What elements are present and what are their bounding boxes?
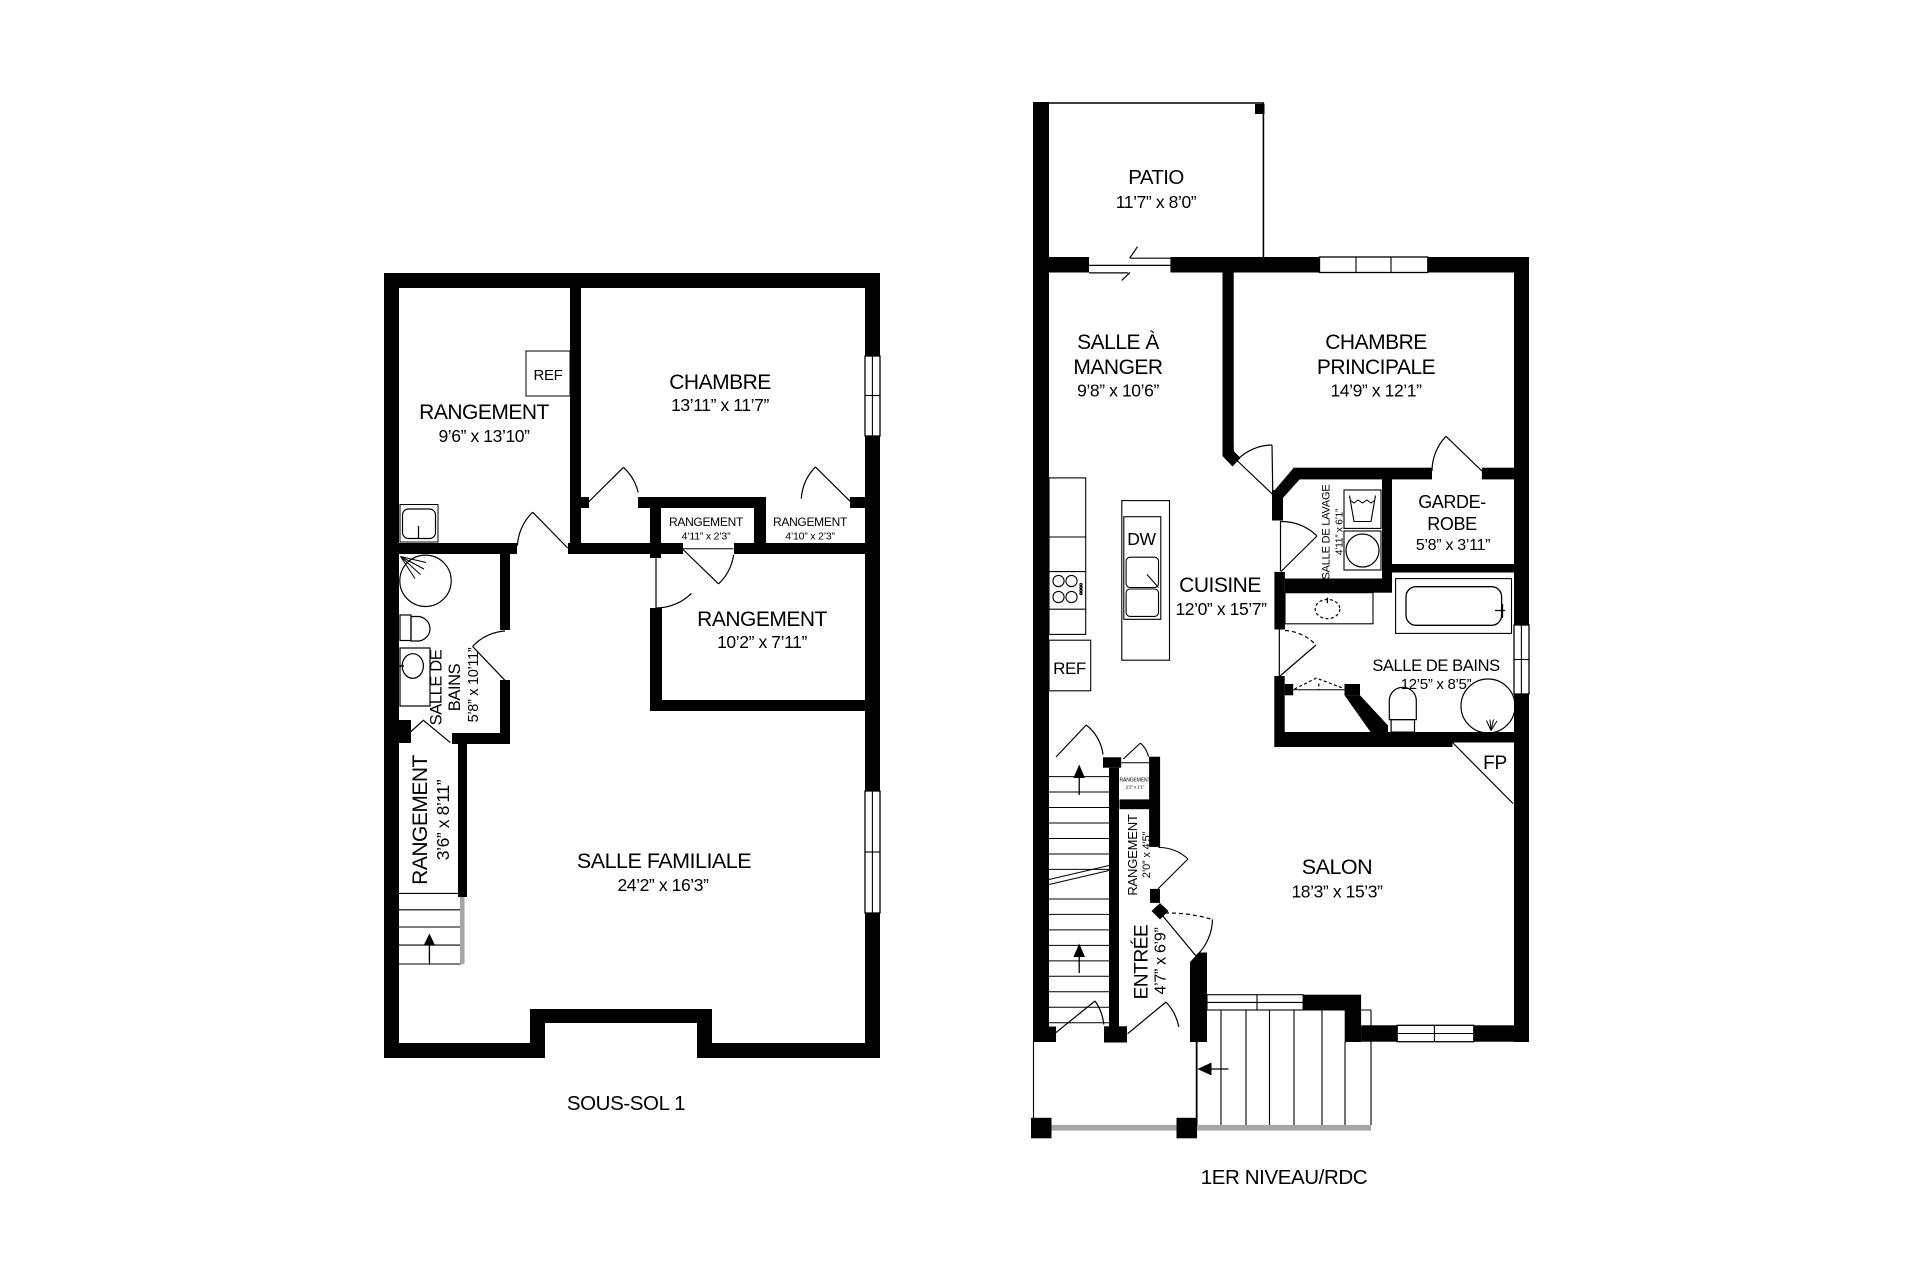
svg-text:SALLE DE BAINS: SALLE DE BAINS: [1372, 657, 1500, 675]
svg-text:REF: REF: [533, 367, 562, 384]
svg-text:5’8” x 10’11”: 5’8” x 10’11”: [466, 647, 482, 722]
svg-text:RANGEMENT: RANGEMENT: [773, 515, 848, 529]
svg-text:RANGEMENT: RANGEMENT: [409, 754, 432, 884]
svg-text:PRINCIPALE: PRINCIPALE: [1317, 356, 1436, 379]
svg-text:18’3” x 15’3”: 18’3” x 15’3”: [1291, 882, 1383, 902]
svg-text:CHAMBRE: CHAMBRE: [669, 371, 771, 394]
svg-text:9’6” x 13’10”: 9’6” x 13’10”: [438, 426, 530, 446]
svg-text:4’10” x 2’3”: 4’10” x 2’3”: [785, 531, 835, 543]
svg-text:14’9” x 12’1”: 14’9” x 12’1”: [1330, 381, 1422, 401]
svg-text:SALLE FAMILIALE: SALLE FAMILIALE: [577, 849, 751, 873]
svg-text:9’8” x 10’6”: 9’8” x 10’6”: [1077, 381, 1159, 401]
svg-text:REF: REF: [1053, 659, 1086, 678]
svg-text:SALON: SALON: [1302, 855, 1372, 879]
svg-text:CHAMBRE: CHAMBRE: [1325, 331, 1427, 354]
svg-text:5’8” x 3’11”: 5’8” x 3’11”: [1416, 537, 1490, 554]
svg-text:13’11” x 11’7”: 13’11” x 11’7”: [671, 395, 769, 415]
svg-text:SALLE DE: SALLE DE: [428, 649, 446, 725]
svg-text:SALLE DE LAVAGE: SALLE DE LAVAGE: [1321, 484, 1333, 579]
svg-text:4’11” x 6’1”: 4’11” x 6’1”: [1335, 509, 1346, 555]
svg-text:FP: FP: [1483, 753, 1507, 774]
svg-text:4’7” x 6’9”: 4’7” x 6’9”: [1153, 928, 1170, 995]
svg-text:24’2” x 16’3”: 24’2” x 16’3”: [617, 875, 709, 895]
svg-text:PATIO: PATIO: [1128, 166, 1183, 189]
svg-text:CUISINE: CUISINE: [1179, 574, 1261, 597]
svg-text:10’2” x 7’11”: 10’2” x 7’11”: [717, 632, 807, 652]
svg-text:1ER NIVEAU/RDC: 1ER NIVEAU/RDC: [1201, 1166, 1368, 1189]
svg-text:BAINS: BAINS: [446, 663, 464, 711]
svg-text:RANGEMENT: RANGEMENT: [1119, 778, 1150, 784]
svg-text:4’11” x 2’3”: 4’11” x 2’3”: [682, 531, 731, 543]
svg-text:11’7” x 8’0”: 11’7” x 8’0”: [1116, 192, 1197, 212]
svg-text:12’0” x 15’7”: 12’0” x 15’7”: [1175, 599, 1267, 619]
svg-text:GARDE-: GARDE-: [1418, 492, 1486, 512]
svg-text:SOUS-SOL 1: SOUS-SOL 1: [567, 1092, 685, 1115]
svg-text:RANGEMENT: RANGEMENT: [1125, 814, 1140, 896]
svg-text:12’5” x 8’5”: 12’5” x 8’5”: [1401, 676, 1472, 693]
svg-text:RANGEMENT: RANGEMENT: [419, 401, 549, 424]
svg-text:DW: DW: [1127, 529, 1156, 549]
svg-text:2’2” x 1’1”: 2’2” x 1’1”: [1126, 785, 1145, 790]
svg-text:ROBE: ROBE: [1427, 514, 1477, 534]
svg-text:2’0” x 4’5”: 2’0” x 4’5”: [1141, 831, 1153, 878]
svg-text:3’6” x 8’11”: 3’6” x 8’11”: [433, 779, 453, 860]
svg-text:ENTRÉE: ENTRÉE: [1132, 925, 1153, 1000]
svg-text:MANGER: MANGER: [1073, 356, 1163, 379]
svg-text:RANGEMENT: RANGEMENT: [697, 608, 827, 631]
svg-text:SALLE À: SALLE À: [1077, 331, 1159, 354]
svg-text:RANGEMENT: RANGEMENT: [669, 515, 744, 529]
